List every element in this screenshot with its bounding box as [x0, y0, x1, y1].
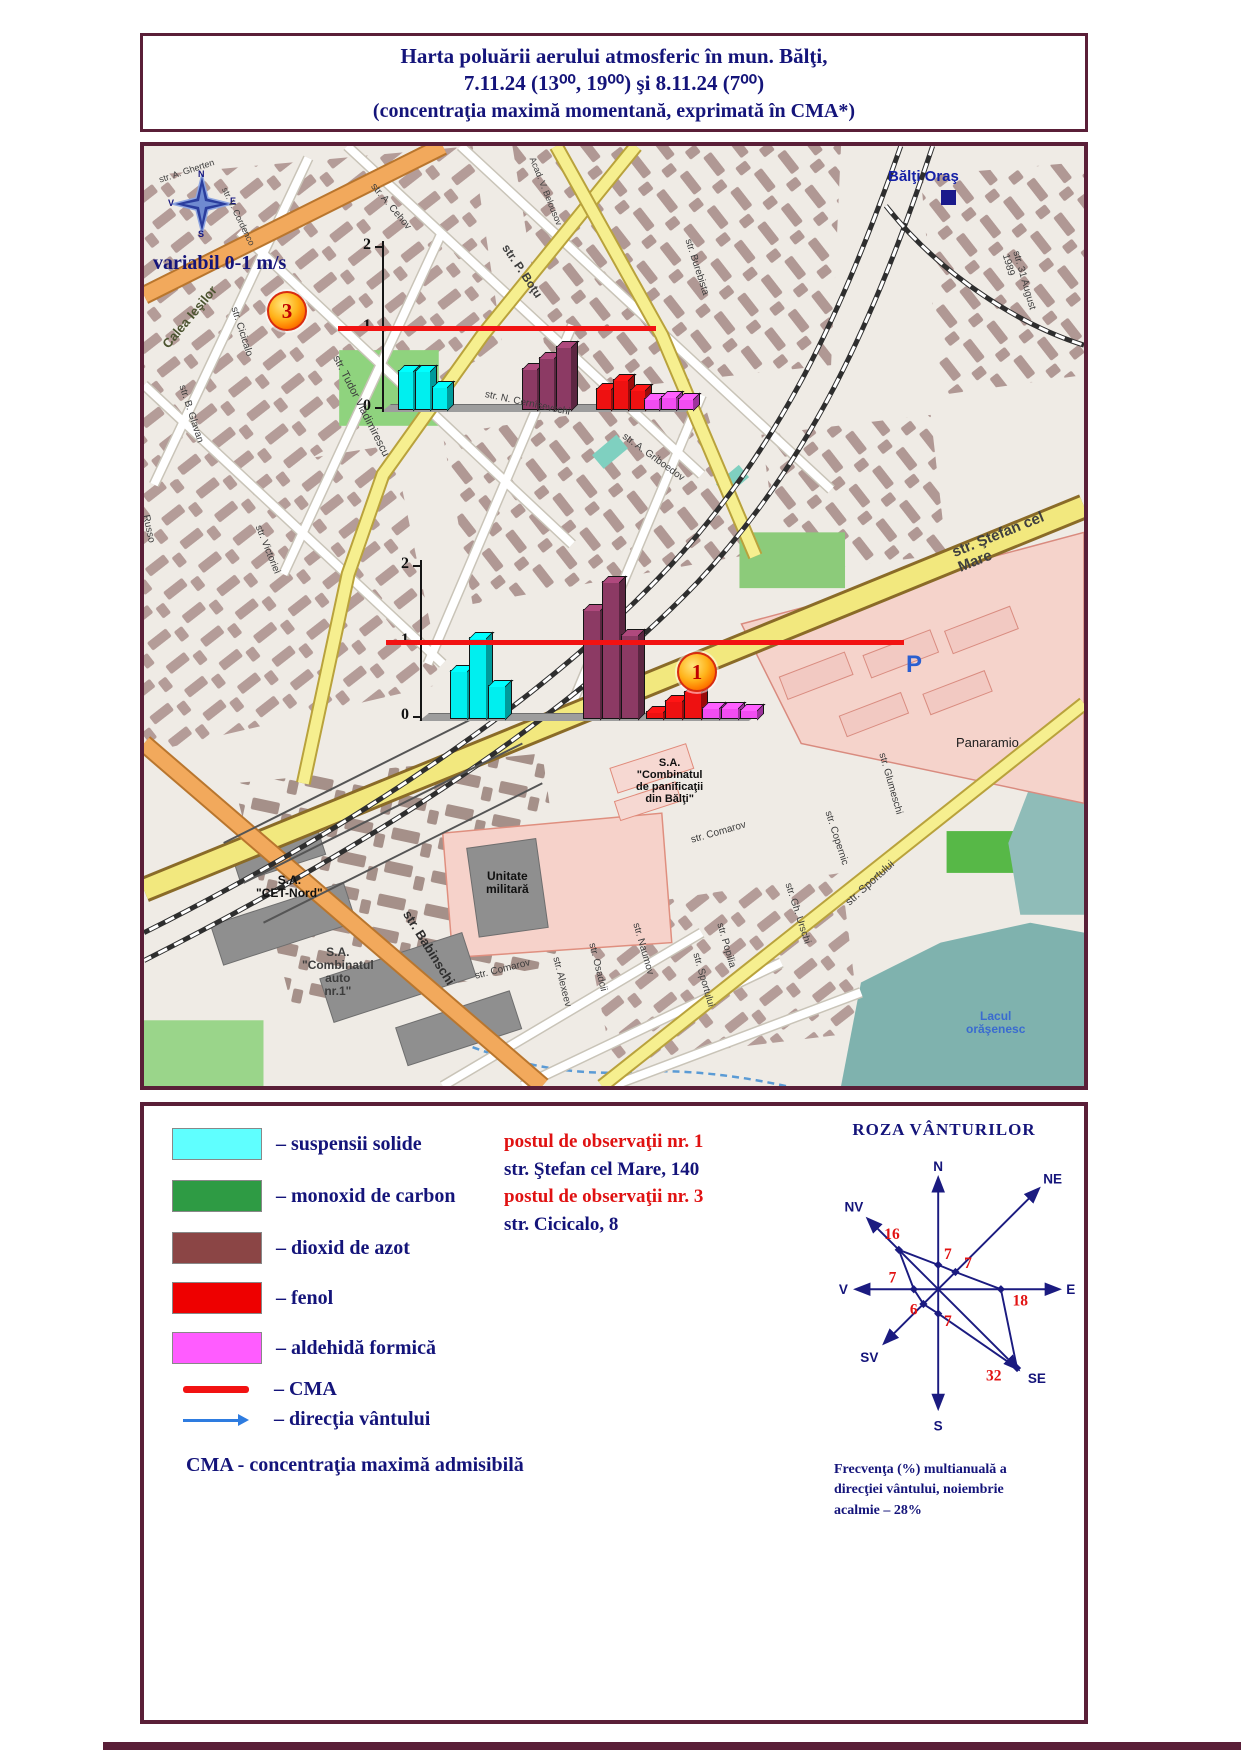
legend-item-label: – direcţia vântului	[274, 1408, 430, 1431]
legend-swatch	[172, 1128, 262, 1160]
rose-direction-label: S	[934, 1419, 943, 1434]
station-marker-1: 1	[677, 652, 717, 692]
rose-frequency-value: 6	[910, 1302, 918, 1319]
park-sw	[144, 1020, 263, 1086]
legend-item-label: – suspensii solide	[276, 1133, 422, 1156]
rose-frequency-value: 7	[944, 1313, 952, 1330]
park-lake	[947, 831, 1019, 873]
map-title-line1: Harta poluării aerului atmosferic în mun…	[143, 43, 1085, 70]
rose-axis-NE	[938, 1189, 1038, 1289]
station-1-number: 1	[692, 660, 703, 685]
legend-item-label: – CMA	[274, 1378, 337, 1401]
legend-item: – dioxid de azot	[172, 1232, 410, 1264]
wind-speed-note: variabil 0-1 m/s	[153, 252, 286, 275]
city-map: N E S V variabil 0-1 m/s Bălţi Oraş 3 1 …	[144, 146, 1084, 1086]
map-base-graphics	[144, 146, 1084, 1086]
compass-star-icon	[170, 172, 234, 236]
rose-data-point	[997, 1285, 1005, 1293]
legend-item-label: – monoxid de carbon	[276, 1185, 455, 1208]
legend-swatch	[172, 1232, 262, 1264]
rose-frequency-value: 32	[986, 1368, 1002, 1385]
compass-v-label: V	[168, 198, 174, 208]
legend-item: – monoxid de carbon	[172, 1180, 455, 1212]
legend-item: – CMA	[172, 1378, 337, 1401]
city-marker-icon	[941, 190, 956, 205]
wind-rose-panel: ROZA VÂNTURILOR NNEESESSVVNV77183276716 …	[804, 1120, 1084, 1521]
station-marker-3: 3	[267, 291, 307, 331]
map-street-label: S.A. "Combinatul auto nr.1"	[302, 946, 374, 998]
cma-definition: CMA - concentraţia maximă admisibilă	[186, 1454, 524, 1477]
rose-direction-label: SE	[1028, 1371, 1046, 1386]
rose-direction-label: E	[1066, 1282, 1075, 1297]
compass-s-label: S	[198, 229, 204, 239]
legend-item: – suspensii solide	[172, 1128, 422, 1160]
post-1-address: str. Ştefan cel Mare, 140	[504, 1156, 703, 1184]
legend-swatch	[172, 1332, 262, 1364]
rose-axis-NV	[868, 1219, 938, 1289]
legend-swatch	[172, 1282, 262, 1314]
map-title-line2: 7.11.24 (13⁰⁰, 19⁰⁰) şi 8.11.24 (7⁰⁰)	[143, 70, 1085, 97]
station-3-number: 3	[282, 299, 293, 324]
map-street-label: S.A. "CET-Nord"	[256, 874, 323, 900]
map-street-label: Panaramio	[956, 736, 1019, 750]
map-box: N E S V variabil 0-1 m/s Bălţi Oraş 3 1 …	[140, 142, 1088, 1090]
rose-frequency-value: 7	[889, 1269, 897, 1286]
rose-frequency-value: 16	[884, 1226, 900, 1243]
legend-item-label: – dioxid de azot	[276, 1237, 410, 1260]
title-box: Harta poluării aerului atmosferic în mun…	[140, 33, 1088, 132]
wind-rose-chart: NNEESESSVVNV77183276716	[808, 1146, 1080, 1446]
city-name-label: Bălţi Oraş	[888, 168, 959, 185]
rose-frequency-value: 7	[944, 1246, 952, 1263]
rose-frequency-value: 7	[964, 1255, 972, 1272]
rose-direction-label: NV	[844, 1200, 863, 1215]
post-1-title: postul de observaţii nr. 1	[504, 1128, 703, 1156]
page-bottom-rule	[103, 1742, 1241, 1750]
wind-arrow-icon	[183, 1414, 249, 1426]
wind-rose-caption: Frecvenţa (%) multianuală a direcţiei vâ…	[834, 1460, 1084, 1521]
compass-rose: N E S V	[170, 172, 234, 236]
map-street-label: Unitate militară	[486, 870, 529, 896]
post-3-address: str. Cicicalo, 8	[504, 1211, 703, 1239]
legend-item-label: – aldehidă formică	[276, 1337, 436, 1360]
rose-direction-label: NE	[1043, 1172, 1062, 1187]
wind-rose-title: ROZA VÂNTURILOR	[804, 1120, 1084, 1140]
rose-direction-label: SV	[860, 1350, 878, 1365]
rose-data-point	[934, 1261, 942, 1269]
legend-item: – fenol	[172, 1282, 333, 1314]
map-street-label: P	[906, 652, 922, 678]
map-street-label: Lacul orăşenesc	[966, 1010, 1025, 1036]
legend-item: – direcţia vântului	[172, 1408, 430, 1431]
rose-frequency-value: 18	[1013, 1293, 1029, 1310]
observation-posts: postul de observaţii nr. 1 str. Ştefan c…	[504, 1128, 703, 1238]
map-title-line3: (concentraţia maximă momentană, exprimat…	[143, 98, 1085, 124]
legend-box: – suspensii solide– monoxid de carbon– d…	[140, 1102, 1088, 1724]
legend-item: – aldehidă formică	[172, 1332, 436, 1364]
legend-swatch	[172, 1180, 262, 1212]
post-3-title: postul de observaţii nr. 3	[504, 1183, 703, 1211]
rose-direction-label: V	[839, 1282, 848, 1297]
legend-item-label: – fenol	[276, 1287, 333, 1310]
rose-direction-label: N	[933, 1159, 943, 1174]
map-street-label: S.A. "Combinatul de panificaţii din Bălţ…	[636, 758, 703, 806]
cma-line-icon	[183, 1386, 249, 1393]
